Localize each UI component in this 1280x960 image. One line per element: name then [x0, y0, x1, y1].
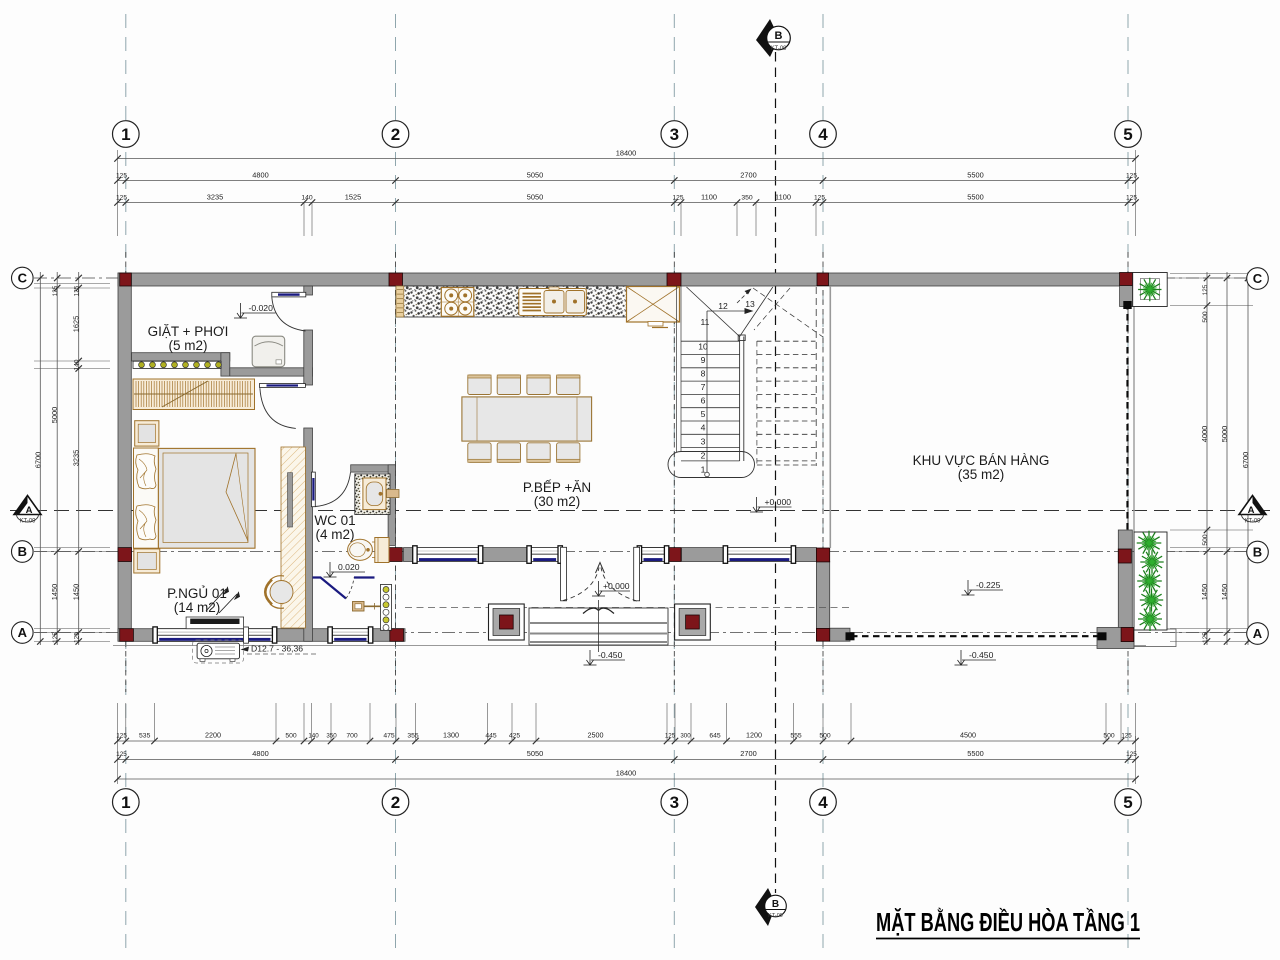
svg-text:6700: 6700 [33, 452, 42, 468]
svg-text:18400: 18400 [616, 769, 637, 778]
svg-text:125: 125 [1126, 751, 1137, 758]
svg-text:500: 500 [1202, 534, 1209, 546]
svg-text:-0.450: -0.450 [598, 650, 623, 660]
svg-text:MẶT BẰNG ĐIỀU HÒA TẦNG 1: MẶT BẰNG ĐIỀU HÒA TẦNG 1 [876, 907, 1140, 937]
svg-text:-0.020: -0.020 [249, 303, 274, 313]
svg-text:1300: 1300 [443, 731, 459, 740]
svg-text:125: 125 [74, 285, 81, 296]
svg-text:1100: 1100 [775, 193, 791, 202]
svg-text:300: 300 [680, 733, 691, 740]
svg-text:535: 535 [139, 733, 151, 740]
svg-text:3: 3 [670, 125, 679, 144]
svg-text:3: 3 [670, 793, 679, 812]
svg-text:P.BẾP +ĂN: P.BẾP +ĂN [523, 480, 591, 495]
svg-text:5: 5 [1123, 793, 1132, 812]
svg-text:500: 500 [1103, 733, 1115, 740]
svg-text:12: 12 [718, 301, 728, 311]
svg-text:645: 645 [709, 733, 721, 740]
svg-text:125: 125 [814, 195, 825, 202]
svg-text:WC 01: WC 01 [314, 513, 355, 528]
svg-text:125: 125 [1121, 733, 1132, 740]
svg-text:9: 9 [701, 355, 706, 365]
svg-text:6700: 6700 [1241, 452, 1250, 468]
svg-text:125: 125 [116, 751, 127, 758]
svg-text:6: 6 [701, 396, 706, 406]
svg-text:500: 500 [819, 733, 831, 740]
svg-text:A: A [1248, 505, 1255, 516]
svg-text:125: 125 [52, 632, 59, 643]
svg-text:125: 125 [116, 733, 127, 740]
svg-text:3235: 3235 [72, 450, 81, 466]
svg-text:5: 5 [701, 409, 706, 419]
svg-text:C: C [1253, 271, 1263, 286]
svg-text:2200: 2200 [205, 731, 221, 740]
svg-text:B: B [1253, 545, 1262, 560]
svg-text:KT-09: KT-09 [768, 913, 783, 919]
svg-text:700: 700 [346, 733, 358, 740]
svg-text:1200: 1200 [746, 731, 762, 740]
svg-text:125: 125 [665, 733, 676, 740]
svg-text:1625: 1625 [72, 316, 81, 332]
svg-text:445: 445 [485, 733, 497, 740]
svg-text:4800: 4800 [252, 171, 268, 180]
svg-text:4: 4 [701, 423, 706, 433]
svg-text:(30 m2): (30 m2) [534, 494, 581, 509]
svg-text:KT-09: KT-09 [770, 46, 787, 52]
svg-text:10: 10 [698, 342, 708, 352]
svg-text:555: 555 [790, 733, 802, 740]
svg-text:1450: 1450 [72, 584, 81, 600]
svg-text:5050: 5050 [527, 749, 543, 758]
svg-text:5: 5 [1123, 125, 1132, 144]
svg-text:5050: 5050 [527, 171, 543, 180]
svg-text:125: 125 [1126, 195, 1137, 202]
svg-text:(4 m2): (4 m2) [315, 527, 354, 542]
svg-text:2: 2 [391, 125, 400, 144]
svg-text:1: 1 [121, 793, 130, 812]
svg-text:1: 1 [121, 125, 130, 144]
svg-text:A: A [18, 625, 28, 640]
svg-text:5500: 5500 [967, 749, 983, 758]
svg-text:2500: 2500 [588, 731, 604, 740]
svg-text:KT-09: KT-09 [19, 519, 36, 525]
svg-text:500: 500 [285, 733, 297, 740]
svg-text:P.NGỦ 01: P.NGỦ 01 [167, 586, 227, 601]
svg-text:4: 4 [818, 125, 828, 144]
svg-text:125: 125 [1126, 173, 1137, 180]
svg-text:1525: 1525 [345, 193, 361, 202]
svg-text:5500: 5500 [967, 171, 983, 180]
svg-text:4800: 4800 [252, 749, 268, 758]
svg-text:D12.7 - 36,36: D12.7 - 36,36 [251, 644, 303, 654]
svg-text:4000: 4000 [1200, 426, 1209, 442]
svg-text:5050: 5050 [527, 193, 543, 202]
svg-text:425: 425 [509, 733, 521, 740]
svg-text:KHU VỰC BÁN HÀNG: KHU VỰC BÁN HÀNG [913, 453, 1050, 468]
svg-text:5500: 5500 [967, 193, 983, 202]
svg-text:500: 500 [1202, 311, 1209, 323]
svg-text:125: 125 [1202, 632, 1209, 643]
svg-text:2700: 2700 [740, 749, 756, 758]
svg-text:140: 140 [301, 195, 313, 202]
svg-text:GIẶT + PHƠI: GIẶT + PHƠI [148, 324, 229, 339]
svg-text:KT-09: KT-09 [1244, 519, 1261, 525]
svg-text:(14 m2): (14 m2) [174, 600, 221, 615]
svg-text:125: 125 [116, 195, 127, 202]
svg-text:2: 2 [391, 793, 400, 812]
svg-text:125: 125 [1202, 284, 1209, 295]
svg-text:5000: 5000 [1220, 426, 1229, 442]
svg-text:1450: 1450 [1200, 584, 1209, 600]
svg-text:3: 3 [701, 437, 706, 447]
svg-text:125: 125 [672, 195, 683, 202]
svg-text:+0.000: +0.000 [765, 497, 792, 507]
svg-text:11: 11 [701, 317, 710, 327]
svg-text:+0.000: +0.000 [603, 581, 630, 591]
svg-text:350: 350 [326, 733, 337, 740]
svg-text:(35 m2): (35 m2) [958, 467, 1005, 482]
svg-text:-0.450: -0.450 [969, 650, 994, 660]
svg-text:2: 2 [701, 451, 706, 461]
svg-text:350: 350 [741, 195, 753, 202]
svg-text:13: 13 [745, 299, 755, 309]
svg-text:C: C [18, 271, 28, 286]
svg-text:355: 355 [407, 733, 419, 740]
svg-text:4: 4 [818, 793, 828, 812]
svg-text:B: B [18, 544, 27, 559]
svg-text:B: B [772, 899, 779, 910]
svg-text:140: 140 [308, 733, 319, 740]
svg-text:(5 m2): (5 m2) [168, 338, 207, 353]
svg-text:3235: 3235 [207, 193, 223, 202]
svg-text:125: 125 [116, 173, 127, 180]
svg-text:140: 140 [74, 359, 81, 370]
svg-text:1450: 1450 [50, 584, 59, 600]
svg-text:B: B [775, 30, 783, 42]
svg-text:18400: 18400 [616, 149, 637, 158]
svg-text:125: 125 [74, 632, 81, 643]
svg-text:A: A [1253, 626, 1263, 641]
svg-text:-0.225: -0.225 [976, 580, 1001, 590]
svg-text:8: 8 [701, 369, 706, 379]
svg-text:125: 125 [52, 285, 59, 296]
svg-text:475: 475 [383, 733, 395, 740]
svg-text:2700: 2700 [740, 171, 756, 180]
svg-text:1450: 1450 [1220, 584, 1229, 600]
svg-text:1100: 1100 [701, 193, 717, 202]
svg-text:0.020: 0.020 [338, 562, 360, 572]
svg-text:7: 7 [701, 382, 706, 392]
svg-text:5000: 5000 [50, 407, 59, 423]
svg-text:A: A [26, 505, 33, 516]
svg-text:4500: 4500 [960, 731, 976, 740]
